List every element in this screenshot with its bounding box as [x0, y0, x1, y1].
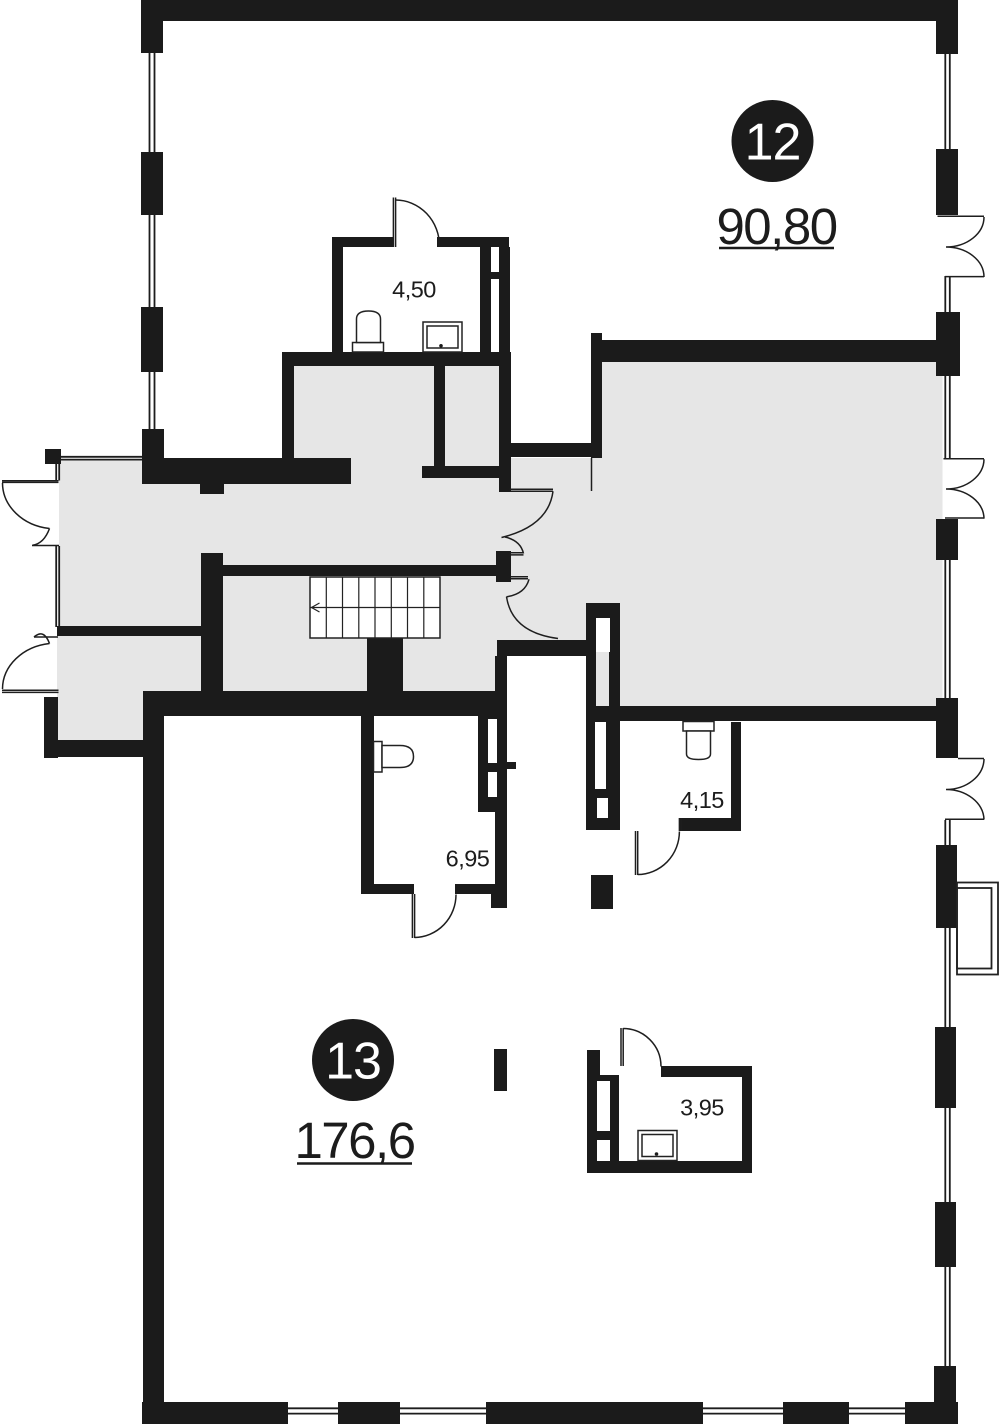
svg-text:12: 12	[745, 114, 801, 172]
svg-text:6,95: 6,95	[446, 846, 490, 872]
svg-text:176,6: 176,6	[294, 1112, 414, 1169]
svg-text:3,95: 3,95	[680, 1095, 724, 1121]
svg-text:4,15: 4,15	[680, 787, 724, 813]
svg-text:90,80: 90,80	[716, 198, 836, 255]
svg-text:4,50: 4,50	[392, 277, 436, 303]
svg-text:13: 13	[325, 1033, 381, 1091]
